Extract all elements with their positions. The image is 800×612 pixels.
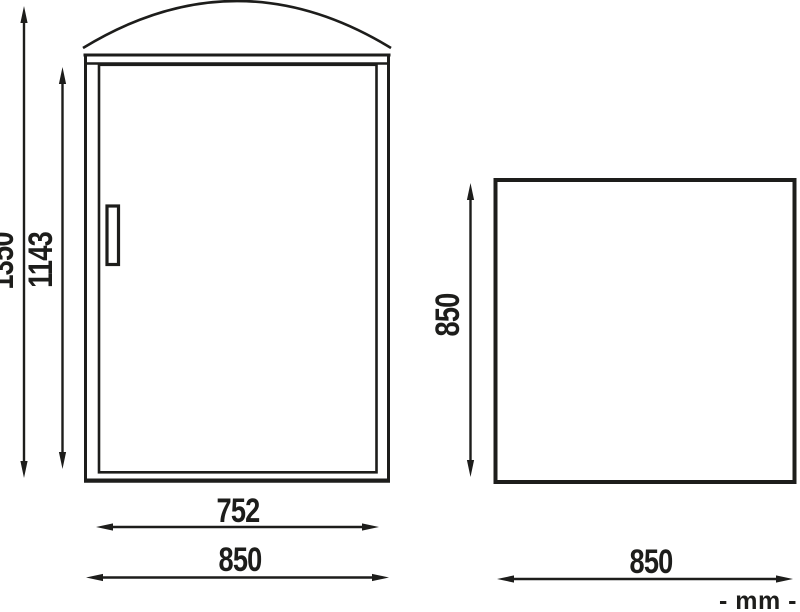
- dimension-side-height: 850: [428, 183, 474, 477]
- units-label: - mm -: [719, 587, 797, 612]
- door-panel-outline: [99, 65, 377, 473]
- door-height-arrow-down: [59, 452, 66, 469]
- door-width-arrow-right: [362, 523, 379, 530]
- side-width-label: 850: [630, 542, 673, 581]
- side-view: [496, 180, 795, 482]
- dimension-drawing-canvas: 1350 1143 752 850: [0, 0, 800, 612]
- overall-width-arrow-left: [86, 574, 103, 581]
- cabinet-dimension-drawing: 1350 1143 752 850: [0, 0, 800, 612]
- side-height-arrow-down: [467, 460, 474, 477]
- door-handle: [107, 206, 119, 265]
- overall-height-arrow-up: [20, 6, 27, 23]
- overall-height-arrow-down: [20, 461, 27, 478]
- overall-width-label: 850: [219, 540, 262, 579]
- dimension-door-height: 1143: [21, 67, 66, 469]
- front-view-dimensions: 1350 1143 752 850: [0, 6, 389, 581]
- side-width-arrow-right: [776, 575, 793, 582]
- overall-height-label: 1350: [0, 232, 21, 289]
- door-width-arrow-left: [96, 523, 113, 530]
- dimension-overall-width: 850: [86, 540, 389, 581]
- side-view-outline: [496, 180, 795, 482]
- side-height-arrow-up: [467, 183, 474, 200]
- dimension-side-width: 850: [497, 542, 793, 583]
- door-height-label: 1143: [21, 232, 60, 288]
- dimension-door-width: 752: [96, 491, 379, 531]
- side-view-dimensions: 850 850: [428, 183, 793, 583]
- front-view: [83, 1, 391, 482]
- side-width-arrow-left: [497, 575, 514, 582]
- door-height-arrow-up: [59, 67, 66, 84]
- roof-arch-line: [83, 1, 391, 48]
- door-width-label: 752: [217, 491, 260, 530]
- overall-width-arrow-right: [372, 574, 389, 581]
- side-height-label: 850: [428, 294, 467, 337]
